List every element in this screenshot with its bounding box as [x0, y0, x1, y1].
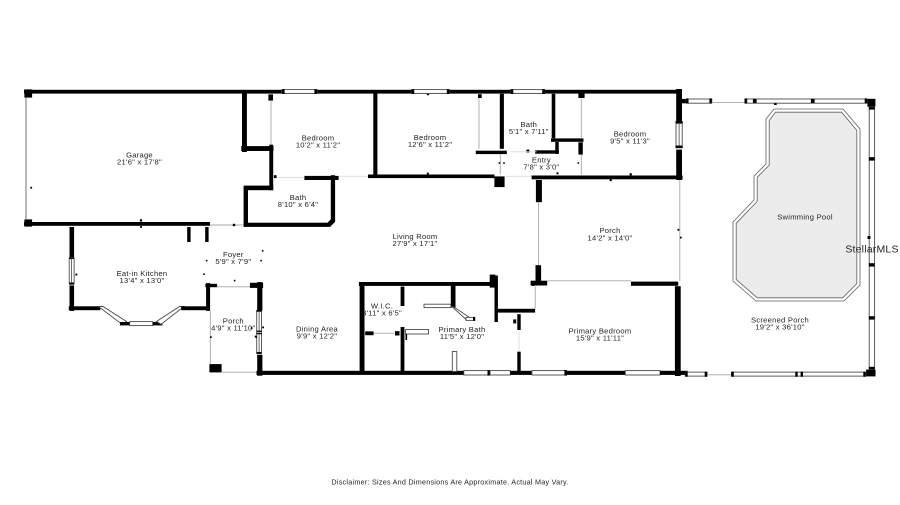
- svg-text:Swimming Pool: Swimming Pool: [777, 213, 833, 222]
- svg-text:14'2" x 14'0": 14'2" x 14'0": [588, 233, 633, 242]
- svg-text:7'8" x 3'0": 7'8" x 3'0": [523, 163, 559, 172]
- svg-text:StellarMLS: StellarMLS: [845, 244, 898, 256]
- svg-text:4'9" x 11'10": 4'9" x 11'10": [211, 324, 255, 333]
- svg-text:5'1" x 7'11": 5'1" x 7'11": [509, 127, 549, 136]
- svg-text:9'5" x 11'3": 9'5" x 11'3": [610, 136, 650, 145]
- svg-text:8'10" x 6'4": 8'10" x 6'4": [278, 200, 318, 209]
- svg-text:3'11" x 6'5": 3'11" x 6'5": [362, 308, 402, 317]
- svg-text:11'5" x 12'0": 11'5" x 12'0": [440, 332, 484, 341]
- svg-text:21'6" x 17'8": 21'6" x 17'8": [117, 158, 162, 167]
- svg-text:13'4" x 13'0": 13'4" x 13'0": [120, 276, 165, 285]
- svg-text:10'2" x 11'2": 10'2" x 11'2": [296, 140, 340, 149]
- svg-text:Disclaimer: Sizes And Dimensio: Disclaimer: Sizes And Dimensions Are App…: [331, 478, 568, 487]
- svg-text:9'9" x 12'2": 9'9" x 12'2": [297, 332, 337, 341]
- svg-text:19'2" x 36'10": 19'2" x 36'10": [755, 323, 804, 332]
- svg-text:27'9" x 17'1": 27'9" x 17'1": [393, 239, 438, 248]
- svg-text:15'9" x 11'11": 15'9" x 11'11": [576, 334, 624, 343]
- svg-text:5'9" x 7'9": 5'9" x 7'9": [215, 257, 251, 266]
- svg-text:12'6" x 11'2": 12'6" x 11'2": [408, 140, 452, 149]
